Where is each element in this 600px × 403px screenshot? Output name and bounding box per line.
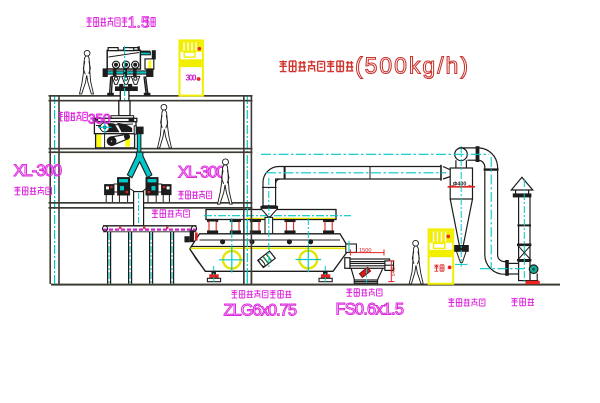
- svg-text:548: 548: [391, 267, 397, 276]
- svg-text:1500: 1500: [359, 248, 371, 254]
- svg-text:350: 350: [88, 112, 111, 127]
- svg-text:1.5: 1.5: [128, 15, 150, 32]
- svg-text:300: 300: [186, 73, 198, 82]
- svg-text:Φ400: Φ400: [453, 182, 466, 188]
- svg-text:(500kg/h): (500kg/h): [355, 53, 468, 79]
- svg-text:ZLG6x0.75: ZLG6x0.75: [224, 302, 298, 320]
- svg-text:FS0.6x1.5: FS0.6x1.5: [336, 301, 405, 319]
- svg-text:XL-300: XL-300: [178, 164, 226, 182]
- svg-text:XL-300: XL-300: [14, 162, 63, 180]
